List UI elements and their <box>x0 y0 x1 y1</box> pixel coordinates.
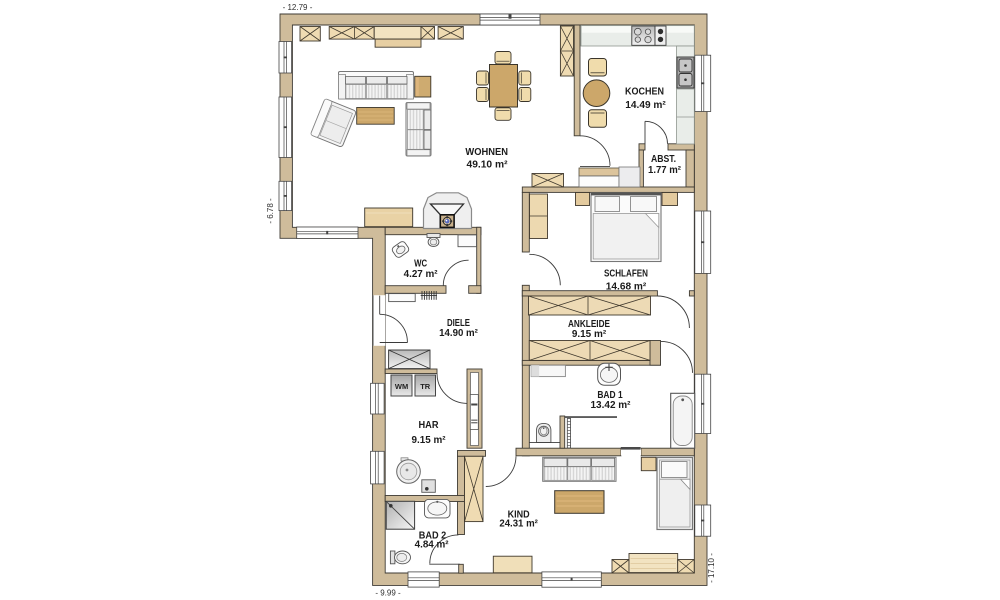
svg-text:- 6.78 -: - 6.78 - <box>266 198 275 224</box>
svg-text:4.27 m²: 4.27 m² <box>404 269 439 280</box>
svg-text:- 12.79 -: - 12.79 - <box>283 3 313 12</box>
svg-text:HAR: HAR <box>419 420 440 431</box>
svg-text:1.77 m²: 1.77 m² <box>648 165 682 176</box>
svg-text:- 17.10 -: - 17.10 - <box>707 553 716 583</box>
svg-text:TR: TR <box>420 382 431 391</box>
svg-text:WM: WM <box>395 382 408 391</box>
svg-text:WOHNEN: WOHNEN <box>465 147 508 158</box>
svg-text:- 9.99 -: - 9.99 - <box>375 588 401 597</box>
svg-text:13.42 m²: 13.42 m² <box>591 400 632 411</box>
svg-text:SCHLAFEN: SCHLAFEN <box>604 269 648 280</box>
svg-text:24.31 m²: 24.31 m² <box>499 519 538 530</box>
svg-text:ABST.: ABST. <box>651 154 676 165</box>
svg-text:14.90 m²: 14.90 m² <box>439 328 478 339</box>
svg-text:14.68 m²: 14.68 m² <box>606 282 647 293</box>
svg-text:9.15 m²: 9.15 m² <box>412 435 447 446</box>
svg-text:9.15 m²: 9.15 m² <box>572 329 607 340</box>
svg-text:14.49 m²: 14.49 m² <box>625 100 666 111</box>
svg-text:KOCHEN: KOCHEN <box>625 87 664 98</box>
svg-text:49.10 m²: 49.10 m² <box>467 160 509 171</box>
svg-text:4.84 m²: 4.84 m² <box>415 539 450 550</box>
